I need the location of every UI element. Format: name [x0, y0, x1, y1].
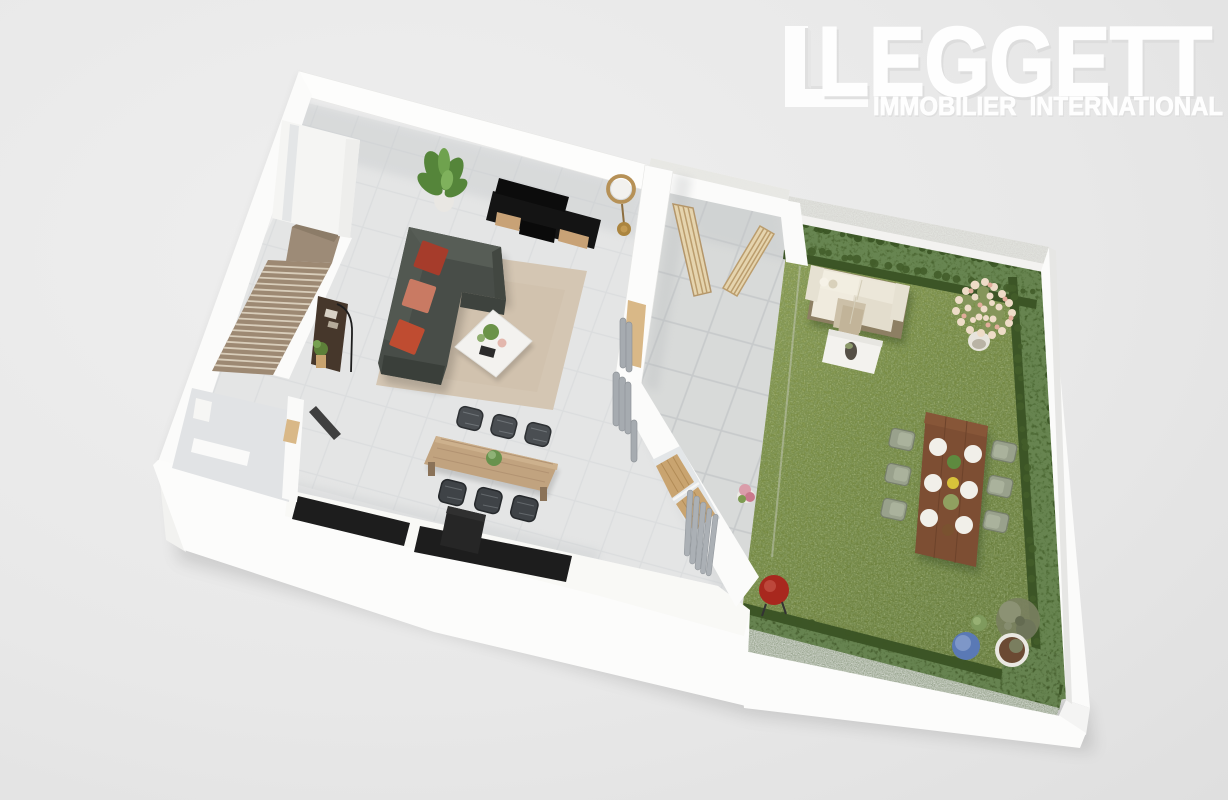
svg-text:IMMOBILIER INTERNATIONAL: IMMOBILIER INTERNATIONAL: [873, 93, 1223, 121]
